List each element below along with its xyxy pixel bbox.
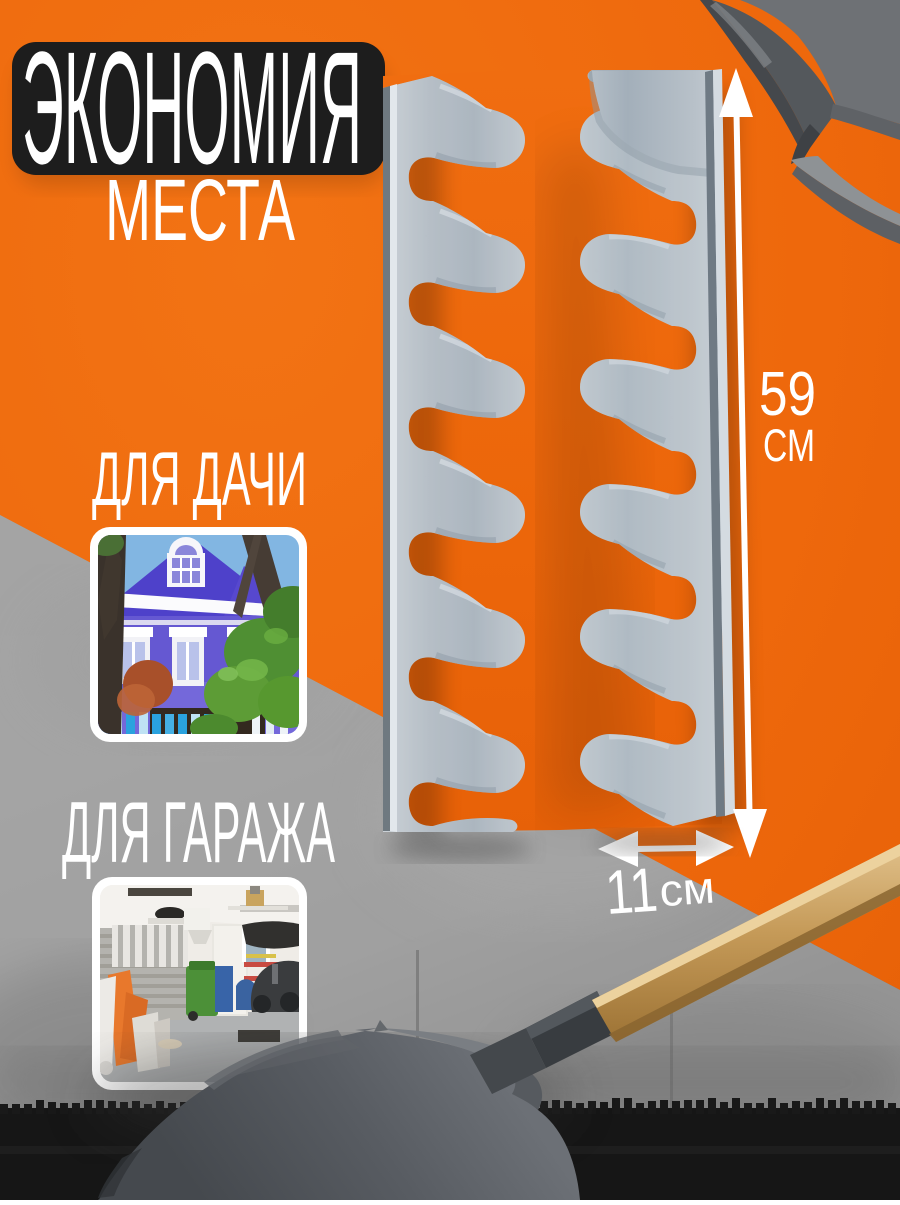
svg-text:ДЛЯ ГАРАЖА: ДЛЯ ГАРАЖА	[62, 785, 335, 881]
svg-text:11: 11	[603, 856, 660, 928]
svg-text:см: см	[658, 862, 716, 917]
svg-text:59: 59	[759, 360, 816, 429]
svg-text:СМ: СМ	[763, 420, 815, 471]
svg-text:МЕСТА: МЕСТА	[105, 162, 295, 259]
svg-text:ДЛЯ ДАЧИ: ДЛЯ ДАЧИ	[92, 437, 307, 522]
